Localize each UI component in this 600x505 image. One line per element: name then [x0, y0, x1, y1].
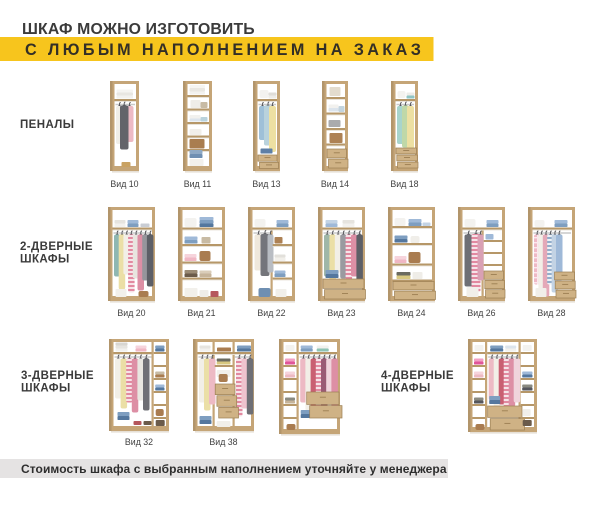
svg-text:Вид 38: Вид 38: [209, 437, 237, 447]
svg-text:Вид 22: Вид 22: [257, 308, 285, 318]
svg-text:Вид 26: Вид 26: [467, 308, 495, 318]
svg-text:Вид 21: Вид 21: [187, 308, 215, 318]
svg-text:Вид 28: Вид 28: [537, 308, 565, 318]
svg-text:Вид 18: Вид 18: [390, 179, 418, 189]
svg-text:С ЛЮБЫМ НАПОЛНЕНИЕМ НА ЗАКАЗ: С ЛЮБЫМ НАПОЛНЕНИЕМ НА ЗАКАЗ: [25, 41, 424, 59]
svg-text:ПЕНАЛЫ: ПЕНАЛЫ: [20, 119, 74, 131]
svg-text:ШКАФ МОЖНО ИЗГОТОВИТЬ: ШКАФ МОЖНО ИЗГОТОВИТЬ: [22, 21, 255, 38]
svg-text:Вид 23: Вид 23: [327, 308, 355, 318]
svg-text:Стоимость шкафа с выбранным на: Стоимость шкафа с выбранным наполнением …: [21, 462, 447, 476]
svg-text:Вид 32: Вид 32: [125, 437, 153, 447]
svg-text:Вид 13: Вид 13: [252, 179, 280, 189]
svg-text:Вид 24: Вид 24: [397, 308, 425, 318]
svg-text:Вид 14: Вид 14: [321, 179, 349, 189]
svg-text:Вид 10: Вид 10: [110, 179, 138, 189]
svg-text:Вид 11: Вид 11: [184, 179, 212, 189]
svg-text:Вид 20: Вид 20: [117, 308, 145, 318]
